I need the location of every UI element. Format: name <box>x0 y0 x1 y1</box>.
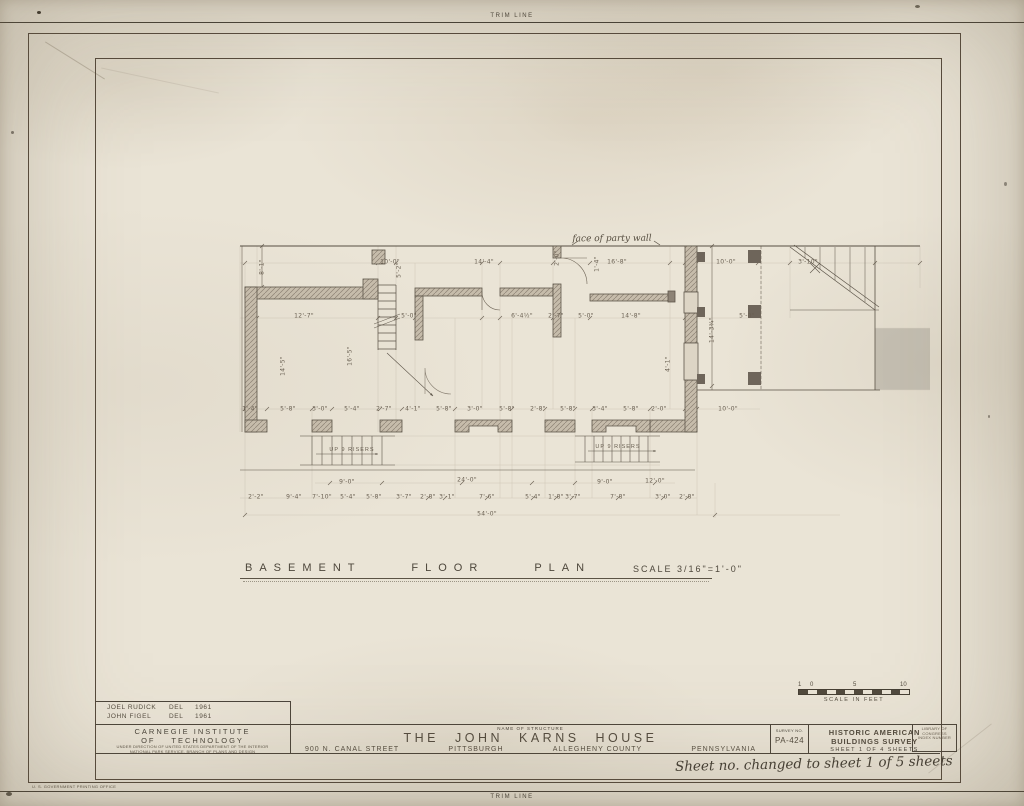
dimension-label: 5'-0" <box>401 313 417 320</box>
dimension-label: 5'-4" <box>344 406 360 413</box>
dimension-label: 2'-2" <box>248 494 264 501</box>
delineator-year: 1961 <box>195 713 212 720</box>
dimension-label: 14'-8" <box>621 313 641 320</box>
dimension-label: 4'-1" <box>665 356 672 372</box>
direction-note-line2: NATIONAL PARK SERVICE, BRANCH OF PLANS A… <box>95 750 290 755</box>
dimension-label: 5'-8" <box>280 406 296 413</box>
dimension-label: 14'-3¾" <box>709 317 716 343</box>
title-block: CARNEGIE INSTITUTE OF TECHNOLOGY UNDER D… <box>95 724 940 754</box>
survey-number: PA-424 <box>771 736 808 745</box>
institution-cell: CARNEGIE INSTITUTE OF TECHNOLOGY UNDER D… <box>95 725 290 753</box>
dimension-label: 2'-0" <box>651 406 667 413</box>
structure-name: THE JOHN KARNS HOUSE <box>291 731 770 745</box>
scale-bar-ticks: 1 0 5 10 <box>798 682 910 689</box>
party-wall-note: face of party wall <box>572 234 651 245</box>
scale-tick-0: 0 <box>810 682 813 688</box>
dimension-label: 24'-0" <box>457 477 477 484</box>
dimension-label: 5'-0" <box>578 313 594 320</box>
plan-title-underline <box>240 578 712 579</box>
delineator-name: JOHN FIGEL <box>107 713 169 720</box>
dimension-label: 54'-0" <box>477 511 497 518</box>
scale-bar-blocks <box>798 689 910 695</box>
dimension-lines <box>242 246 712 432</box>
structure-county: ALLEGHENY COUNTY <box>553 746 642 753</box>
structure-city: PITTSBURGH <box>448 746 503 753</box>
structure-address: 900 N. CANAL STREET <box>305 746 399 753</box>
survey-number-label: SURVEY NO. <box>771 728 808 733</box>
dimension-label: 5'-4" <box>340 494 356 501</box>
graphic-scale-bar: 1 0 5 10 SCALE IN FEET <box>798 682 910 703</box>
dimension-label: 5'-0" <box>739 313 755 320</box>
trim-line-bottom <box>0 791 1024 792</box>
stair-note-left: UP 9 RISERS <box>329 447 374 453</box>
paper-speck <box>988 415 990 418</box>
delineator-year: 1961 <box>195 704 212 711</box>
loc-box-line2: INDEX NUMBER <box>913 736 956 741</box>
paper-speck <box>11 131 14 134</box>
dimension-label: 3'-0" <box>655 494 671 501</box>
paper-speck <box>1004 182 1007 186</box>
dimension-label: 5'-8" <box>366 494 382 501</box>
credit-row: JOEL RUDICK DEL 1961 <box>107 704 290 711</box>
dimension-label: 1'-4" <box>594 256 601 272</box>
institution-line1: CARNEGIE INSTITUTE <box>95 727 290 736</box>
dimension-label: 2'-7" <box>548 313 564 320</box>
printing-office-note: U. S. GOVERNMENT PRINTING OFFICE <box>32 784 116 789</box>
dimension-label: 16'-8" <box>607 259 627 266</box>
dimension-label: 3'-1" <box>439 494 455 501</box>
dimension-label: 7'-8" <box>610 494 626 501</box>
dimension-label: 12'-7" <box>294 313 314 320</box>
delineator-role: DEL <box>169 713 195 720</box>
dimension-label: 2'-7" <box>376 406 392 413</box>
scale-tick-10: 10 <box>900 682 907 688</box>
dimension-label: 5'-8" <box>499 406 515 413</box>
dimension-label: 1'-8" <box>548 494 564 501</box>
dimension-label: 5'-8" <box>436 406 452 413</box>
dimension-label: 7'-10" <box>312 494 332 501</box>
porch <box>697 245 880 390</box>
delineator-credits-box: JOEL RUDICK DEL 1961 JOHN FIGEL DEL 1961 <box>95 701 291 724</box>
dimension-label: 14'-5" <box>280 356 287 376</box>
dimension-label: 3'-7" <box>565 494 581 501</box>
dimension-label: 3'-7" <box>396 494 412 501</box>
dimension-ticks <box>243 244 922 517</box>
dimension-label: 2'-8" <box>420 494 436 501</box>
dimension-label: 2'-0" <box>554 250 561 266</box>
scale-tick-1: 1 <box>798 682 801 688</box>
dimension-label: 4'-1" <box>405 406 421 413</box>
dimension-label: 5'-4" <box>525 494 541 501</box>
dimension-label: 14'-4" <box>474 259 494 266</box>
delineator-name: JOEL RUDICK <box>107 704 169 711</box>
dimension-label: 16'-5" <box>347 346 354 366</box>
dimension-label: 3'-0" <box>312 406 328 413</box>
dimension-label: 8'-1" <box>259 259 266 275</box>
plan-scale-note: SCALE 3/16"=1'-0" <box>633 564 743 574</box>
structure-location-row: 900 N. CANAL STREET PITTSBURGH ALLEGHENY… <box>291 746 770 753</box>
scale-bar-caption: SCALE IN FEET <box>798 697 910 703</box>
dimension-label: 9'-0" <box>597 479 613 486</box>
plan-title-underline-dotted <box>243 581 709 582</box>
dimension-label: 3'-0" <box>467 406 483 413</box>
dimension-label: 5'-8" <box>623 406 639 413</box>
dimension-label: 2'-8" <box>679 494 695 501</box>
dimension-label: 12'-0" <box>645 478 665 485</box>
trim-line-top <box>0 22 1024 23</box>
dimension-label: 9'-0" <box>339 479 355 486</box>
library-of-congress-box: LIBRARY OF CONGRESS INDEX NUMBER <box>912 724 957 752</box>
plan-title: BASEMENT FLOOR PLAN <box>245 562 591 574</box>
dimension-label: 10'-0" <box>718 406 738 413</box>
trim-line-label-top: TRIM LINE <box>0 13 1024 19</box>
dimension-label: 3'-4" <box>592 406 608 413</box>
survey-number-cell: SURVEY NO. PA-424 <box>770 725 808 753</box>
interior-stair <box>374 285 433 396</box>
dimension-label: 9'-4" <box>286 494 302 501</box>
scale-tick-5: 5 <box>853 682 856 688</box>
paper-speck <box>915 5 920 8</box>
dimension-label: 6'-4½" <box>511 313 533 320</box>
structure-name-cell: NAME OF STRUCTURE THE JOHN KARNS HOUSE 9… <box>290 725 770 753</box>
basement-floor-plan-drawing <box>230 228 930 528</box>
trim-line-label-bottom: TRIM LINE <box>0 794 1024 800</box>
dimension-label: 7'-6" <box>479 494 495 501</box>
dimension-label: 2'-8" <box>530 406 546 413</box>
credit-row: JOHN FIGEL DEL 1961 <box>107 713 290 720</box>
dimension-label: 5'-8" <box>560 406 576 413</box>
dimension-label: 10'-0" <box>716 259 736 266</box>
dimension-label: 1'-4" <box>242 406 258 413</box>
habs-drawing-sheet: TRIM LINE TRIM LINE U. S. GOVERNMENT PRI… <box>0 0 1024 806</box>
door-swings <box>425 258 587 394</box>
stair-note-right: UP 9 RISERS <box>595 444 640 450</box>
structure-state: PENNSYLVANIA <box>691 746 756 753</box>
delineator-role: DEL <box>169 704 195 711</box>
dimension-label: 5'-2" <box>396 262 403 278</box>
masonry-walls <box>245 246 697 432</box>
dimension-label: 3'-10" <box>798 259 818 266</box>
